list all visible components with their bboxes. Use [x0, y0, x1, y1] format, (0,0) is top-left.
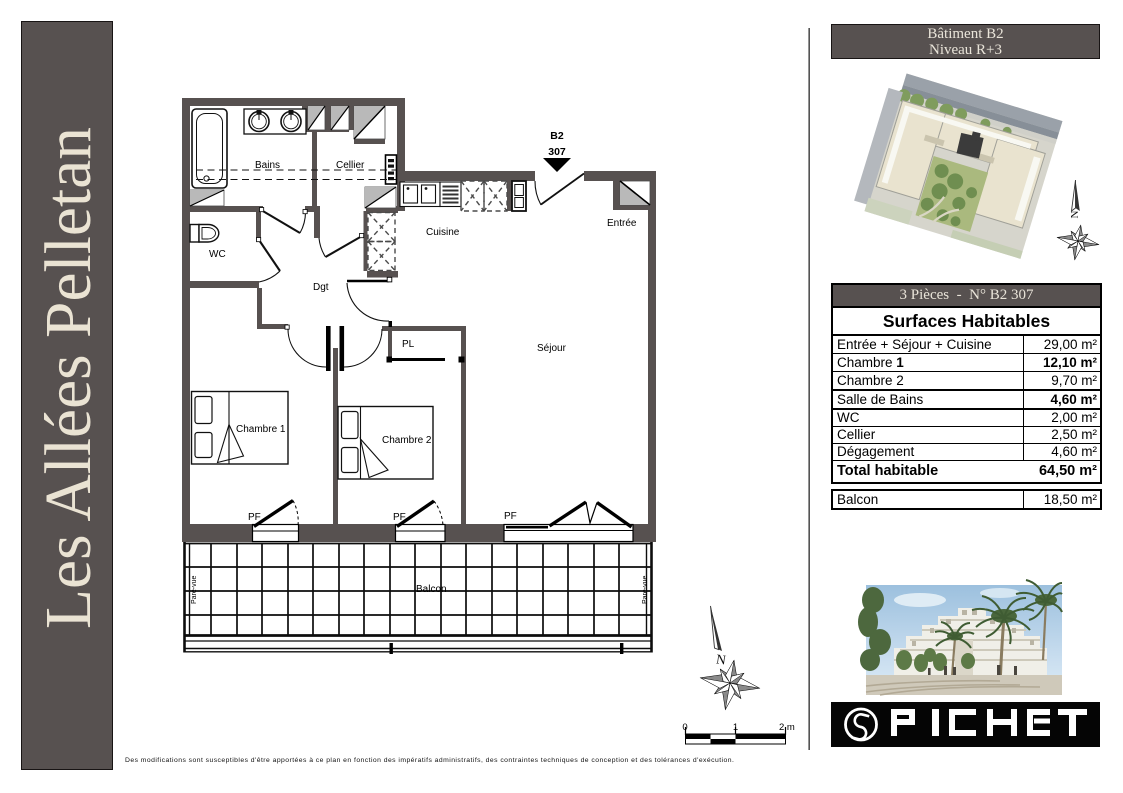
svg-text:Séjour: Séjour	[537, 343, 567, 354]
svg-text:307: 307	[548, 146, 566, 158]
svg-text:Bains: Bains	[255, 160, 280, 171]
svg-text:Pare-vue: Pare-vue	[642, 575, 649, 604]
svg-text:Chambre 1: Chambre 1	[236, 424, 286, 435]
svg-text:Dgt: Dgt	[313, 282, 329, 293]
svg-text:N: N	[715, 651, 727, 667]
svg-text:WC: WC	[209, 249, 226, 260]
svg-text:PL: PL	[402, 339, 415, 350]
svg-text:Entrée: Entrée	[607, 218, 637, 229]
svg-text:Cuisine: Cuisine	[426, 227, 460, 238]
svg-text:PF: PF	[504, 511, 517, 522]
svg-text:2 m: 2 m	[779, 722, 795, 733]
svg-text:Chambre 2: Chambre 2	[382, 435, 432, 446]
svg-text:PF: PF	[248, 512, 261, 523]
svg-text:Balcon: Balcon	[416, 584, 447, 595]
svg-text:PF: PF	[393, 512, 406, 523]
svg-text:B2: B2	[550, 130, 564, 142]
svg-text:Pare-vue: Pare-vue	[191, 575, 198, 604]
svg-text:N: N	[1069, 211, 1081, 219]
svg-text:Cellier: Cellier	[336, 160, 365, 171]
